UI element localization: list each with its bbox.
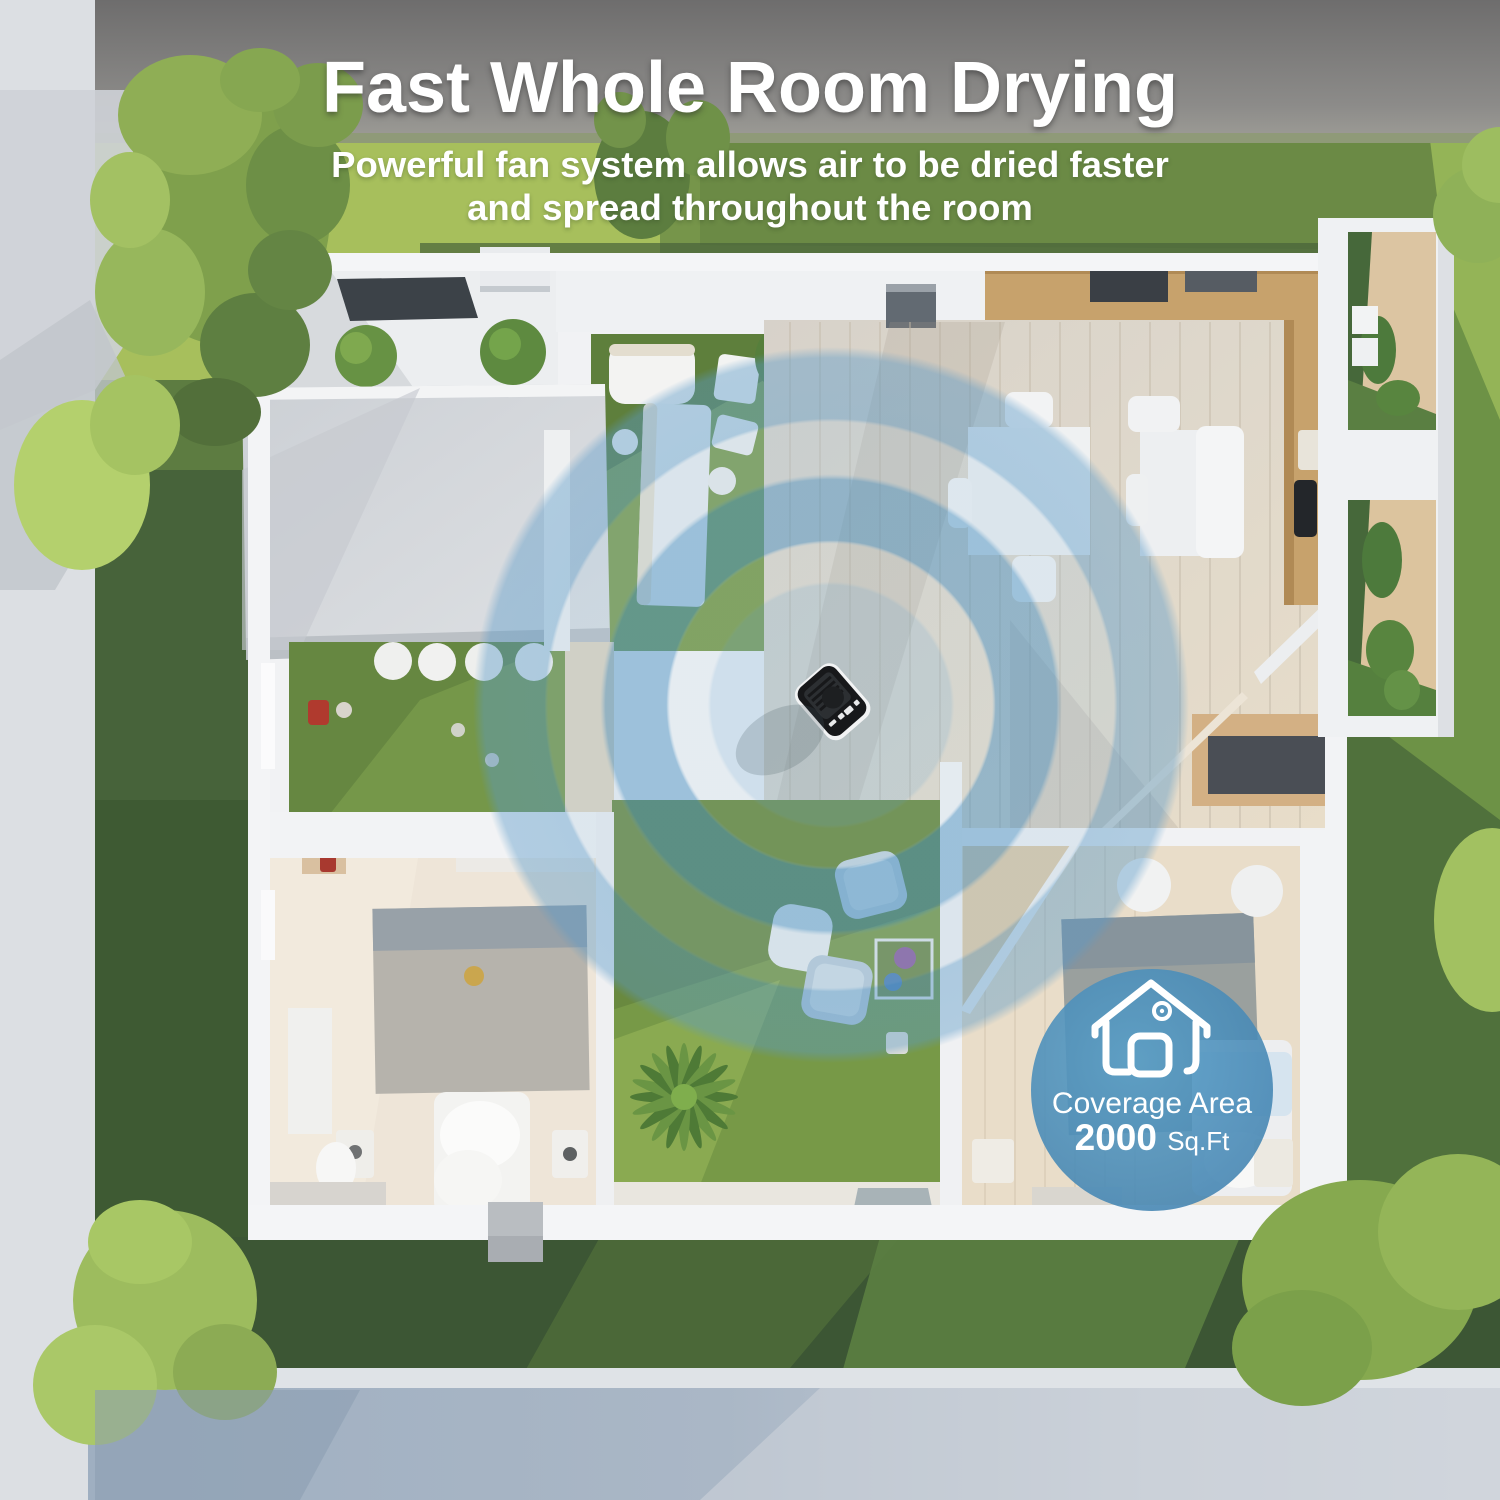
svg-text:Fast Whole Room Drying: Fast Whole Room Drying — [322, 48, 1178, 128]
svg-text:and spread throughout the room: and spread throughout the room — [467, 187, 1033, 228]
svg-text:Coverage Area: Coverage Area — [1052, 1087, 1252, 1120]
svg-text:Powerful fan system allows air: Powerful fan system allows air to be dri… — [331, 144, 1169, 185]
